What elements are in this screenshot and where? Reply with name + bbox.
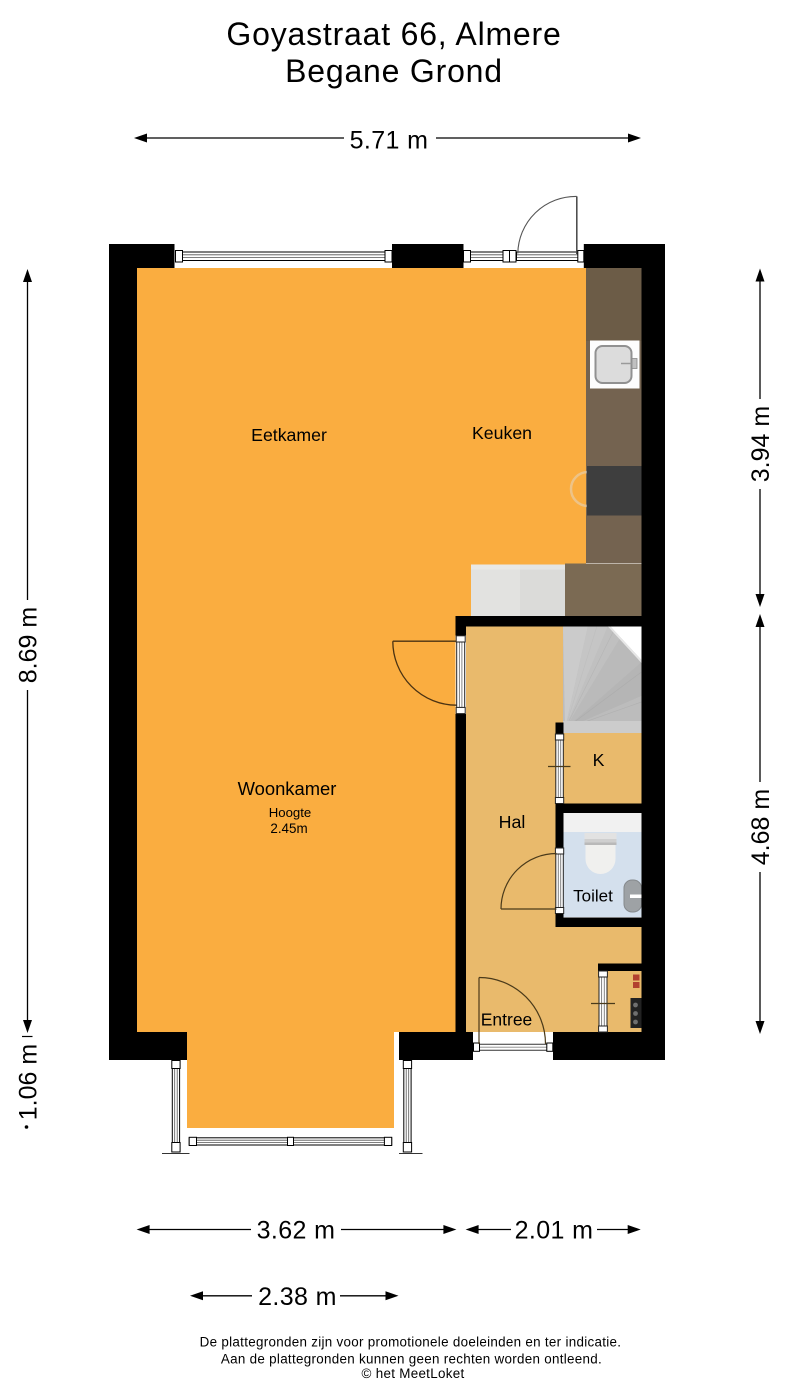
svg-text:Toilet: Toilet [573,887,613,906]
svg-text:Aan de plattegronden kunnen ge: Aan de plattegronden kunnen geen rechten… [221,1352,602,1367]
svg-text:2.38 m: 2.38 m [258,1283,337,1311]
svg-text:Hal: Hal [499,812,526,832]
svg-text:2.01 m: 2.01 m [515,1217,594,1245]
svg-text:Begane Grond: Begane Grond [285,53,503,89]
svg-text:Entree: Entree [481,1010,533,1030]
svg-text:3.94 m: 3.94 m [747,406,775,482]
svg-text:Woonkamer: Woonkamer [238,778,337,799]
svg-text:Keuken: Keuken [472,423,532,443]
svg-text:De plattegronden zijn voor pro: De plattegronden zijn voor promotionele … [200,1335,622,1350]
svg-text:2.45m: 2.45m [270,821,307,836]
svg-text:3.62 m: 3.62 m [257,1217,336,1245]
svg-text:© het MeetLoket: © het MeetLoket [362,1366,465,1381]
svg-text:Eetkamer: Eetkamer [251,425,327,445]
svg-text:K: K [593,750,605,770]
svg-text:4.68 m: 4.68 m [747,789,775,865]
svg-text:5.71 m: 5.71 m [350,126,429,154]
svg-text:1.06 m: 1.06 m [15,1044,43,1120]
svg-text:Goyastraat 66, Almere: Goyastraat 66, Almere [226,16,561,52]
svg-text:Hoogte: Hoogte [269,805,312,820]
svg-text:8.69 m: 8.69 m [15,607,43,683]
